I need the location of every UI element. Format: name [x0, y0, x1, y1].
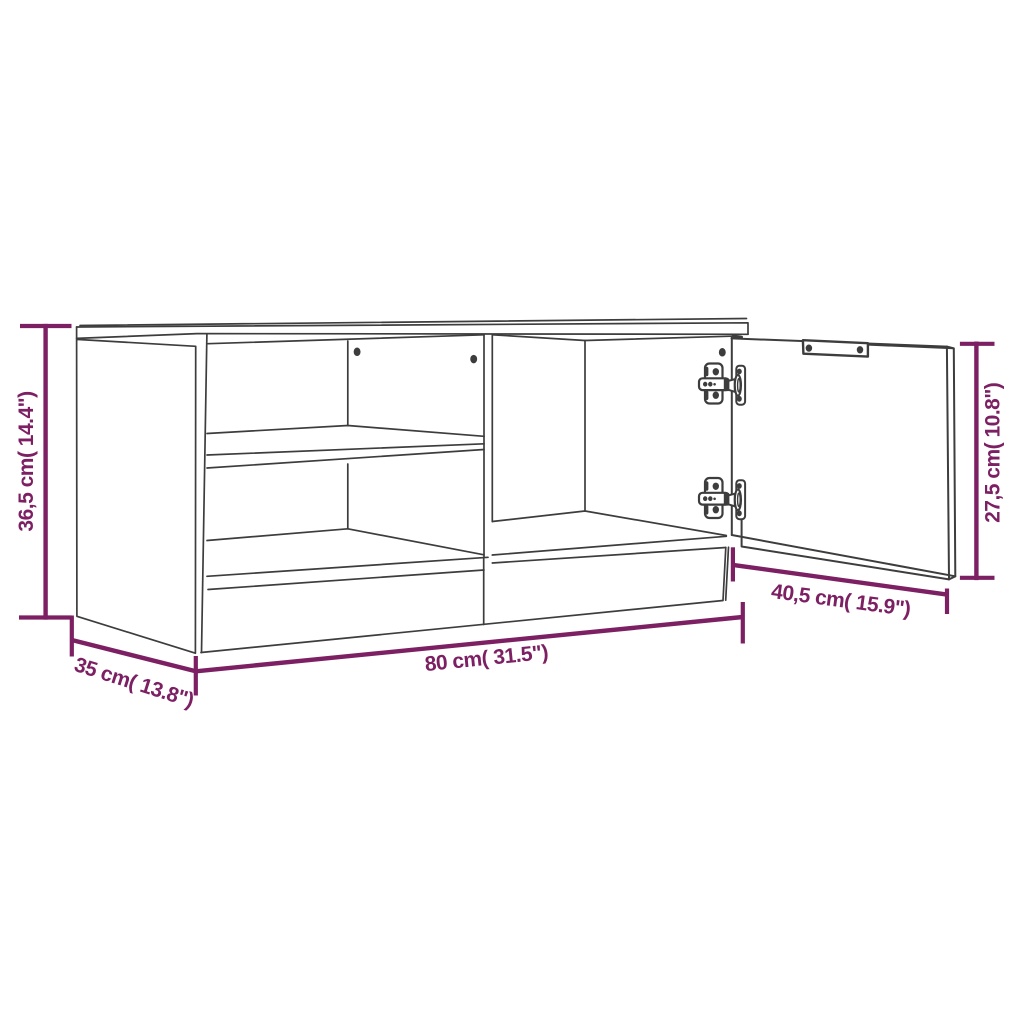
svg-text:35 cm( 13.8"): 35 cm( 13.8")	[72, 653, 197, 712]
svg-text:27,5 cm( 10.8"): 27,5 cm( 10.8")	[982, 383, 1005, 523]
svg-text:36,5 cm( 14.4"): 36,5 cm( 14.4")	[15, 391, 38, 531]
